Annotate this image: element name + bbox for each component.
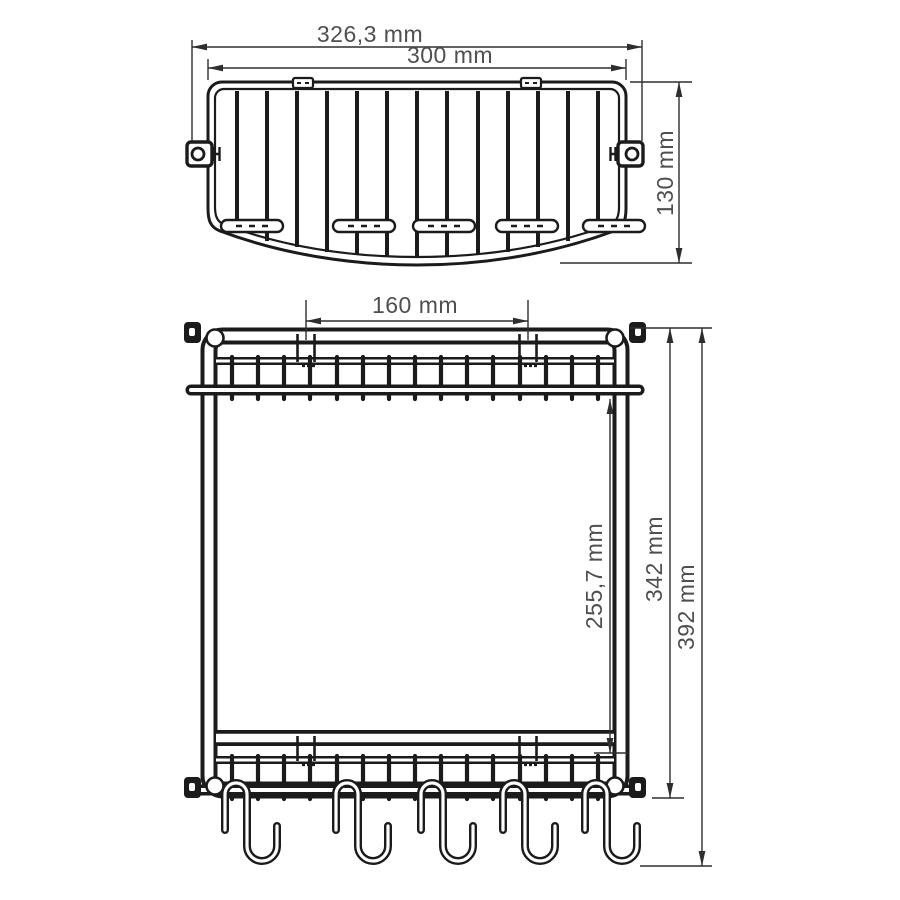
- dim-label-mount-spacing: 160 mm: [372, 292, 458, 318]
- dim-label-shelf-clearance: 255,7 mm: [581, 523, 607, 629]
- mounting-bracket-right: [611, 142, 644, 166]
- dim-label-frame-height: 342 mm: [641, 516, 667, 602]
- shelf-technical-drawing: 326,3 mm 300 mm 130 mm: [0, 0, 900, 900]
- top-view: [187, 78, 645, 265]
- frame-tube: [209, 336, 621, 790]
- dim-label-depth: 130 mm: [652, 130, 678, 216]
- dim-label-total-height: 392 mm: [673, 564, 699, 650]
- slotted-support-rails: [221, 220, 645, 232]
- wall-straps: [298, 334, 538, 765]
- dimension-frame-height: 342 mm: [630, 328, 712, 798]
- technical-drawing-page: 326,3 mm 300 mm 130 mm: [0, 0, 900, 900]
- dim-label-basket-width: 300 mm: [407, 42, 493, 68]
- shelf-rim-bands: [216, 361, 614, 760]
- front-view: [184, 322, 646, 861]
